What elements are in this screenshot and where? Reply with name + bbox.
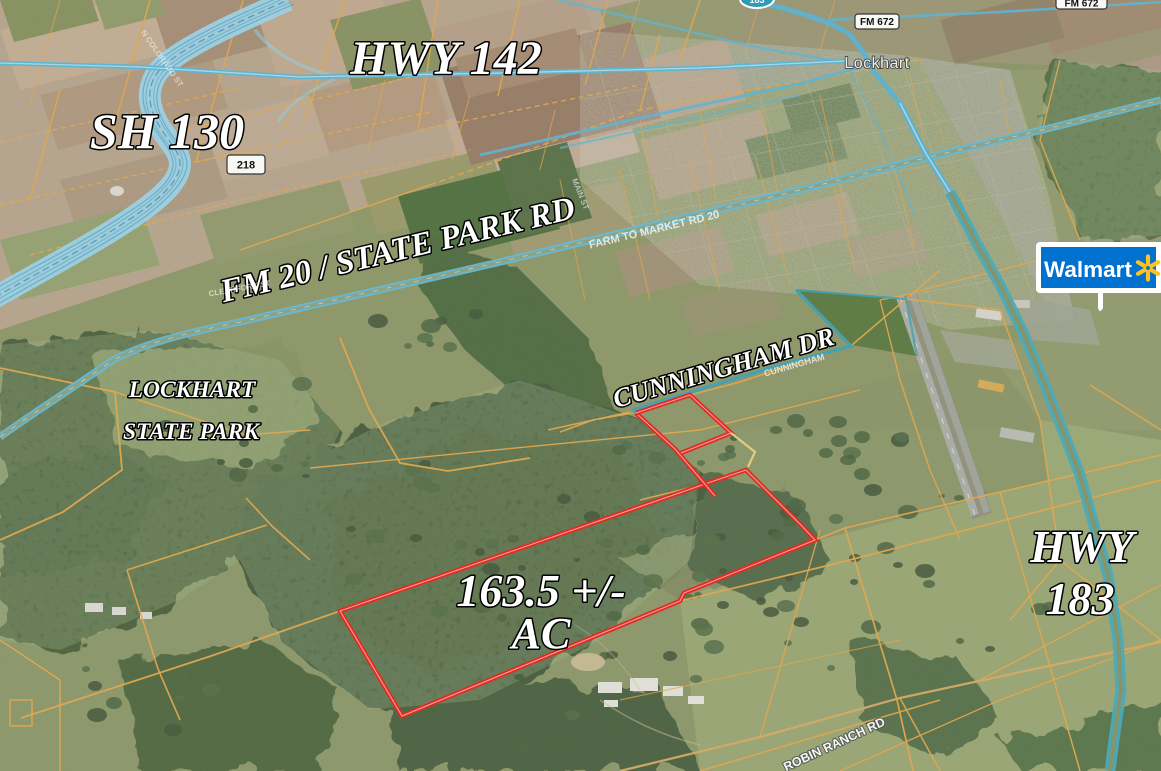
svg-text:FM 672: FM 672 xyxy=(1065,0,1099,10)
svg-text:STATE PARK: STATE PARK xyxy=(123,419,260,445)
svg-text:HWY: HWY xyxy=(1029,521,1138,572)
svg-text:183: 183 xyxy=(1046,573,1115,624)
svg-text:218: 218 xyxy=(237,159,255,171)
svg-text:AC: AC xyxy=(509,609,571,658)
svg-text:183: 183 xyxy=(749,0,764,5)
svg-text:Lockhart: Lockhart xyxy=(844,55,909,72)
svg-text:Walmart: Walmart xyxy=(1044,257,1132,282)
svg-text:HWY 142: HWY 142 xyxy=(349,32,542,85)
svg-text:LOCKHART: LOCKHART xyxy=(128,377,257,403)
svg-text:SH 130: SH 130 xyxy=(90,103,244,159)
svg-text:FM 672: FM 672 xyxy=(860,17,894,28)
